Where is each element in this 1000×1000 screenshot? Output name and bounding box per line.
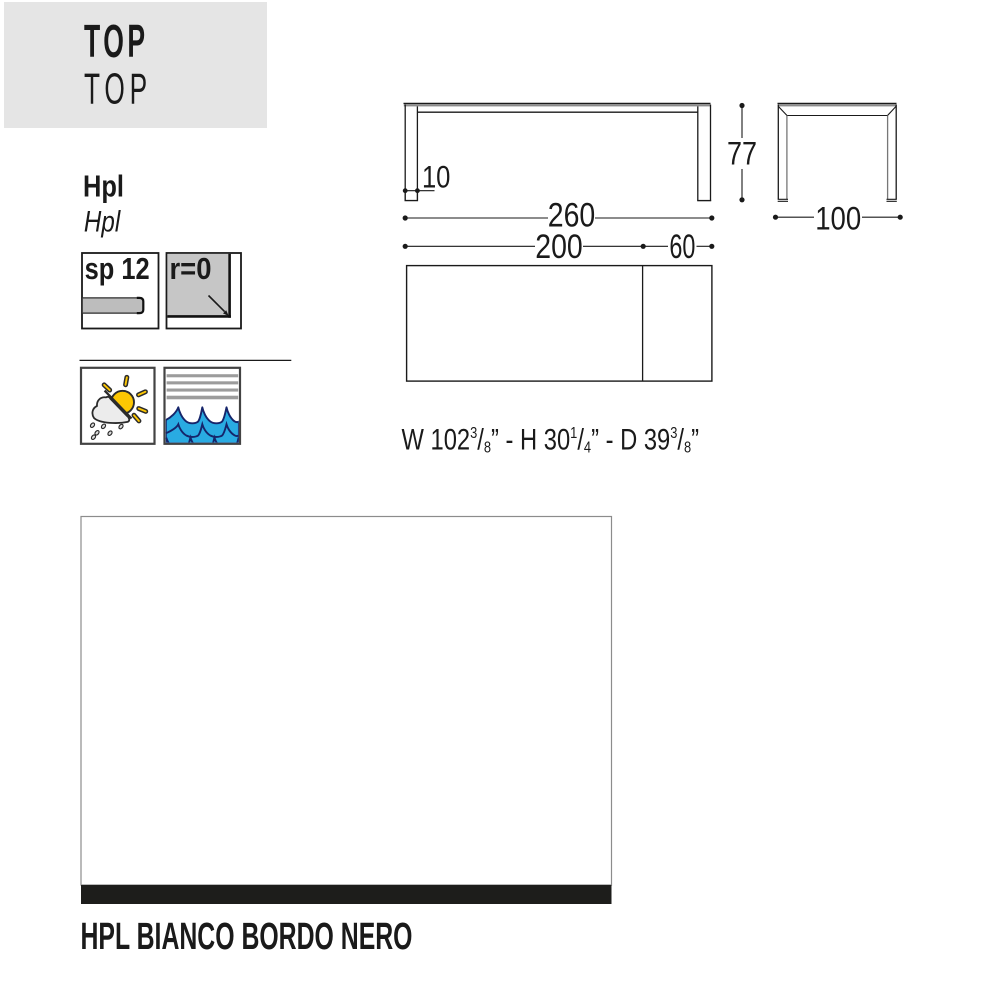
- svg-text:TOP: TOP: [84, 66, 152, 114]
- svg-text:200: 200: [535, 228, 583, 266]
- svg-text:W 1023/8” - H 301/4” - D 393/: W 1023/8” - H 301/4” - D 393/8”: [402, 423, 700, 457]
- svg-text:TOP: TOP: [84, 15, 149, 67]
- svg-text:sp 12: sp 12: [85, 252, 150, 286]
- svg-text:Hpl: Hpl: [83, 170, 124, 204]
- svg-text:60: 60: [669, 228, 695, 266]
- svg-text:r=0: r=0: [170, 252, 212, 286]
- svg-text:77: 77: [727, 135, 757, 171]
- svg-text:100: 100: [815, 200, 861, 236]
- svg-text:Hpl: Hpl: [84, 206, 121, 239]
- svg-text:10: 10: [422, 159, 451, 195]
- svg-text:HPL BIANCO BORDO NERO: HPL BIANCO BORDO NERO: [81, 916, 413, 958]
